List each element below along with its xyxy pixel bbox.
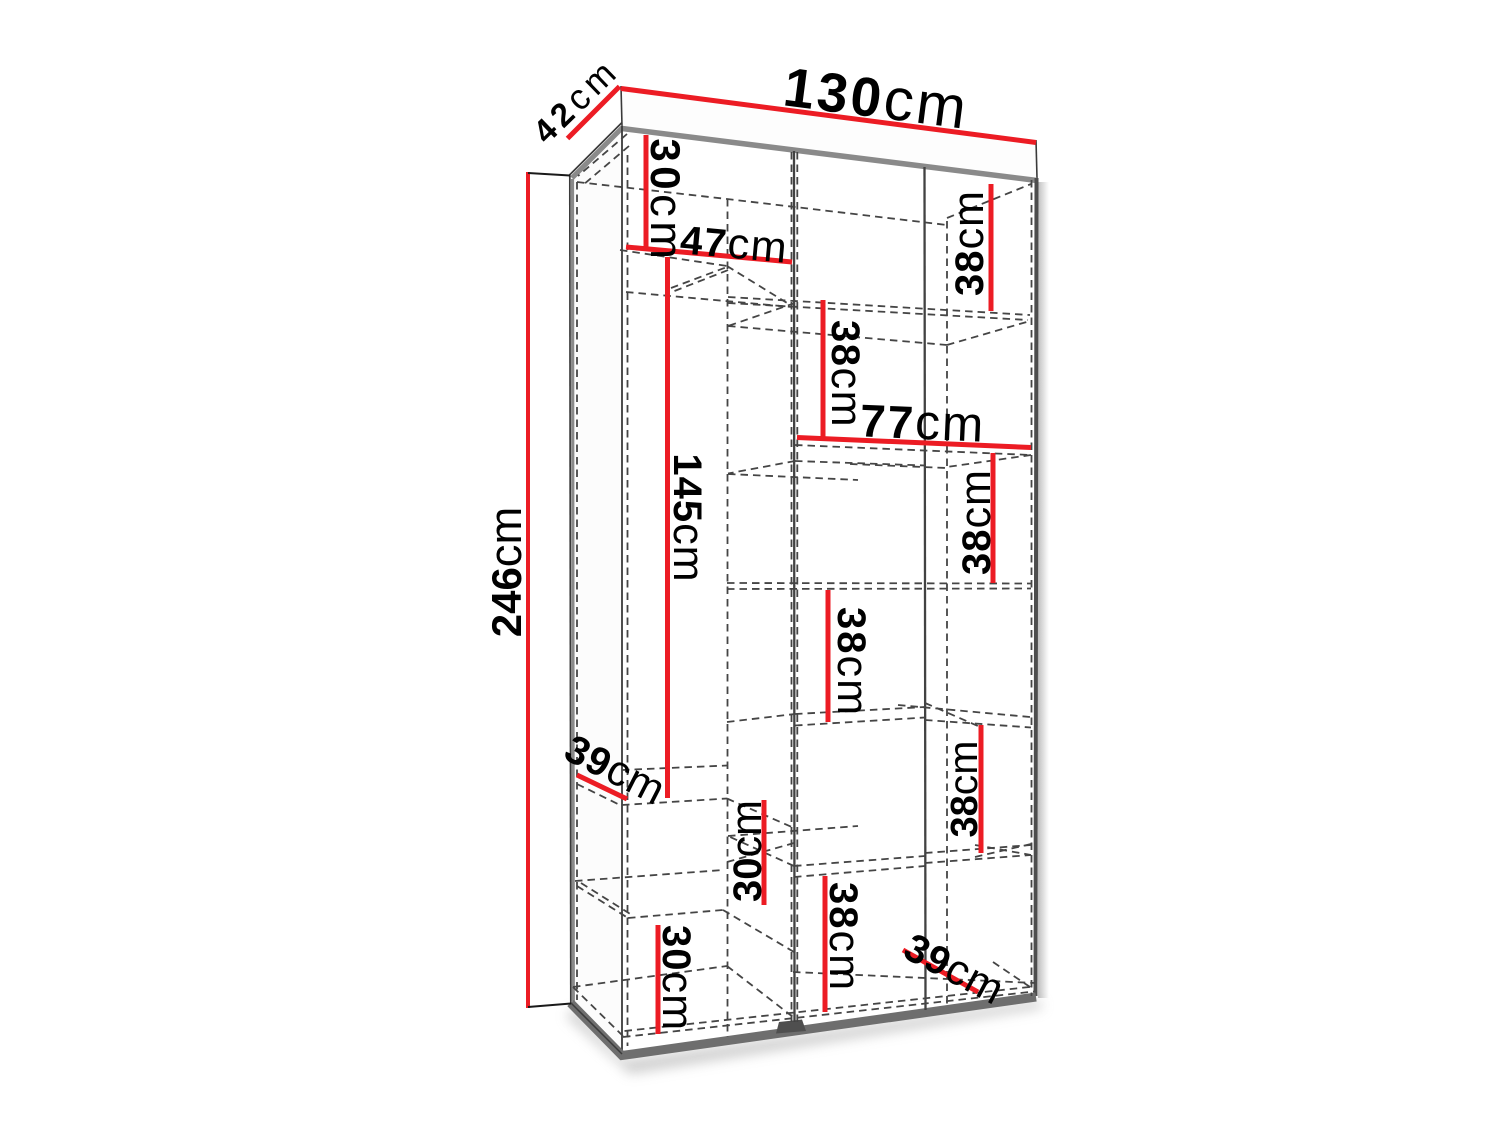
svg-text:38cm: 38cm [828,607,876,717]
svg-text:30cm: 30cm [653,925,701,1031]
svg-text:246cm: 246cm [480,507,531,638]
svg-text:145cm: 145cm [664,453,712,582]
svg-text:38cm: 38cm [952,469,1000,575]
svg-text:38cm: 38cm [940,741,986,838]
svg-text:30cm: 30cm [723,800,771,902]
svg-text:38cm: 38cm [945,190,993,296]
svg-text:38cm: 38cm [820,882,868,992]
svg-text:77cm: 77cm [859,391,987,452]
